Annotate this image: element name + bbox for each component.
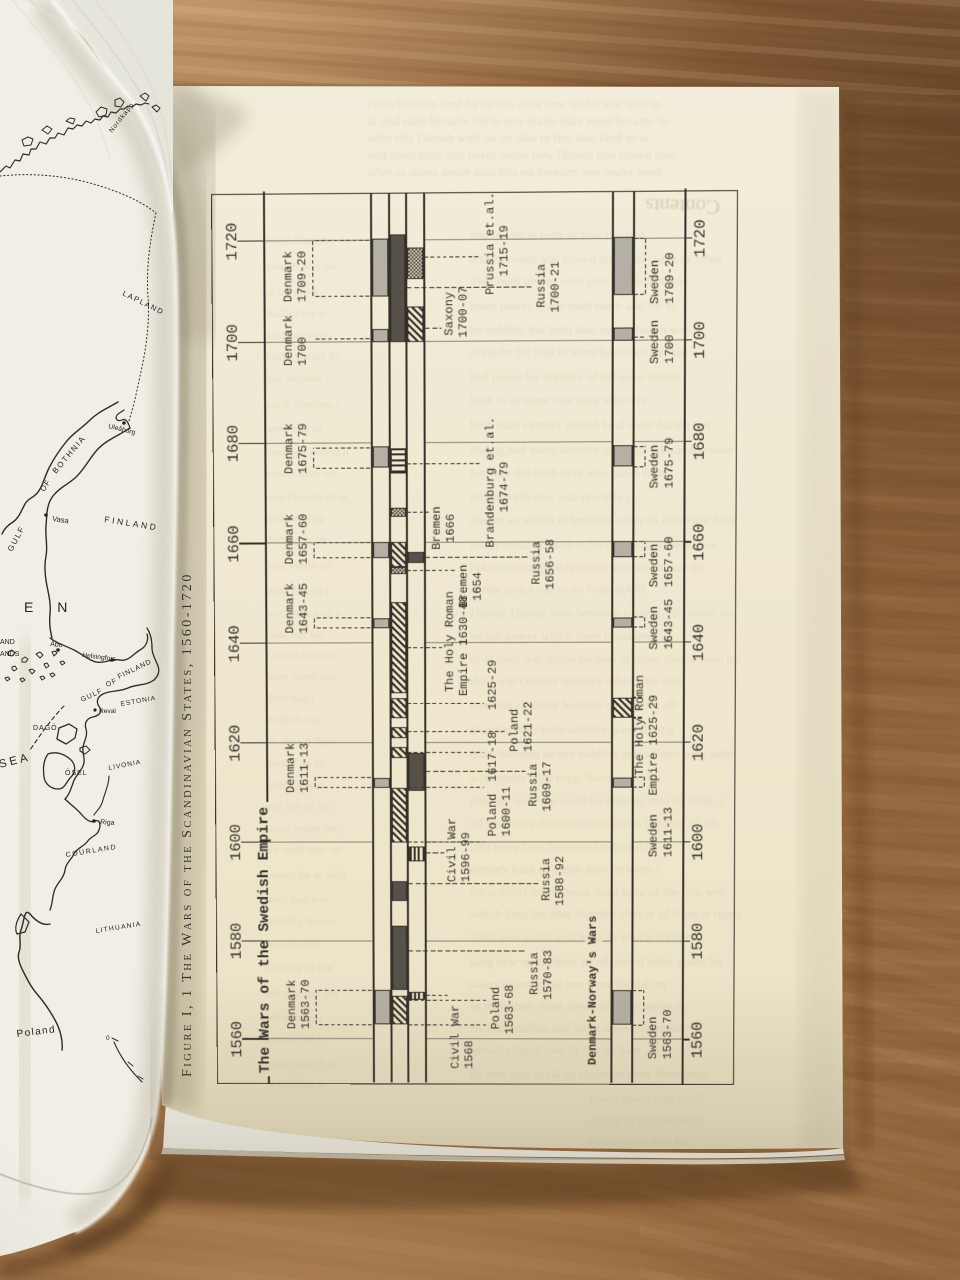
svg-text:Vasa: Vasa — [52, 514, 70, 525]
svg-text:GULF: GULF — [6, 524, 27, 553]
svg-text:Helsingfors: Helsingfors — [82, 652, 117, 663]
svg-text:Poland: Poland — [16, 1024, 57, 1040]
svg-text:Åbo: Åbo — [50, 639, 63, 649]
svg-text:LIVONIA: LIVONIA — [108, 759, 142, 772]
svg-text:ÖSEL: ÖSEL — [65, 769, 88, 777]
svg-text:OF: OF — [38, 477, 53, 493]
svg-text:ANDS: ANDS — [0, 651, 20, 658]
svg-text:SEA: SEA — [0, 752, 32, 771]
svg-text:DAGÖ: DAGÖ — [33, 724, 58, 732]
svg-text:LAPLAND: LAPLAND — [121, 289, 166, 317]
svg-text:Riga: Riga — [100, 819, 115, 827]
svg-text:LITHUANIA: LITHUANIA — [95, 921, 142, 935]
svg-text:FINLAND: FINLAND — [117, 658, 153, 680]
svg-text:AND: AND — [0, 639, 15, 646]
svg-text:Reval: Reval — [99, 708, 116, 715]
svg-text:Uleåborg: Uleåborg — [108, 422, 137, 436]
svg-text:E N: E N — [24, 599, 77, 615]
svg-text:FINLAND: FINLAND — [104, 514, 159, 532]
svg-text:COURLAND: COURLAND — [65, 844, 118, 859]
svg-text:ESTONIA: ESTONIA — [120, 695, 156, 708]
svg-text:0: 0 — [106, 1035, 110, 1042]
svg-text:OF: OF — [105, 678, 119, 689]
